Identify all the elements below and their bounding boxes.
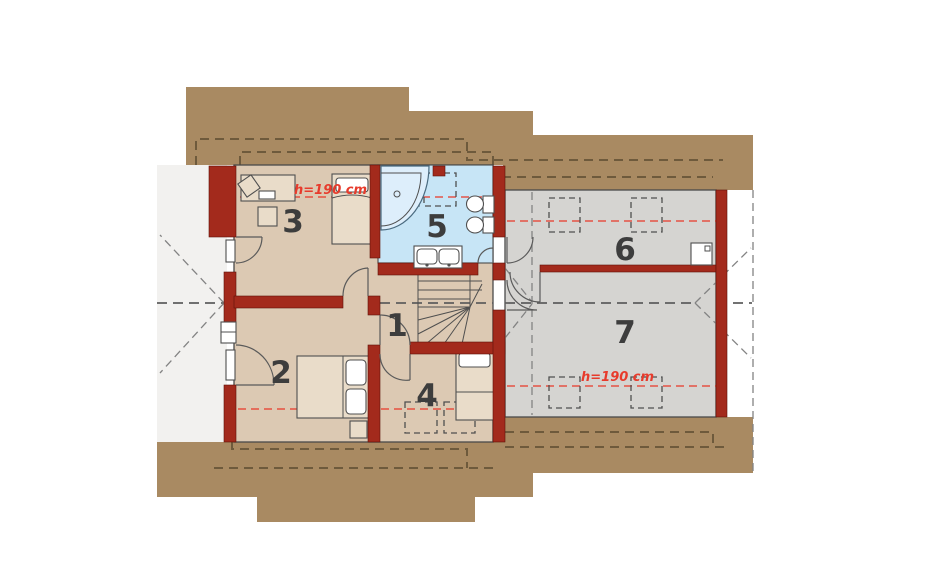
wall-section-divider: [493, 263, 505, 280]
bidet-icon: [467, 217, 484, 233]
wall-rooms-2-4: [368, 345, 380, 442]
wall-corner-pier: [209, 166, 236, 237]
nightstand-icon: [350, 421, 367, 438]
pillow-icon: [346, 360, 366, 385]
room-label-1: 1: [386, 308, 408, 344]
room-label-3: 3: [282, 204, 304, 240]
room-label-5: 5: [426, 209, 448, 245]
sink-basin-icon: [439, 249, 459, 264]
floorplan-drawing: 1 2 3 4 5 6 7 h=190 cm h=190 cm: [0, 0, 940, 587]
wall-hall-room4: [410, 342, 505, 354]
room-label-7: 7: [614, 315, 636, 351]
desk-item-icon: [259, 191, 275, 199]
wall-section-divider: [493, 166, 505, 237]
side-table-icon: [258, 207, 277, 226]
wall-right-exterior: [716, 190, 727, 417]
wall-section-divider: [493, 310, 505, 442]
wall-rooms-2-3: [234, 296, 343, 308]
pillow-icon: [346, 389, 366, 414]
toilet-icon: [483, 196, 494, 213]
height-annotation-right: h=190 cm: [581, 370, 654, 385]
sink-basin-icon: [417, 249, 437, 264]
chimney-block: [433, 166, 445, 176]
room-label-2: 2: [270, 355, 292, 391]
pillow-icon: [459, 353, 490, 367]
bidet-icon: [483, 217, 494, 233]
room-6-fixtures: [691, 243, 712, 265]
room-label-6: 6: [614, 232, 636, 268]
room-4-furniture: [456, 350, 494, 420]
door-leaf-icon: [226, 240, 235, 262]
floorplan-canvas: 1 2 3 4 5 6 7 h=190 cm h=190 cm: [0, 0, 940, 587]
toilet-icon: [467, 196, 484, 212]
wall-rooms-3-5: [370, 165, 380, 258]
wall-left: [224, 385, 236, 442]
wall-hall-room2: [368, 296, 380, 315]
height-annotation-left: h=190 cm: [294, 183, 367, 198]
room-label-4: 4: [416, 378, 438, 414]
door-leaf-icon: [226, 350, 235, 380]
